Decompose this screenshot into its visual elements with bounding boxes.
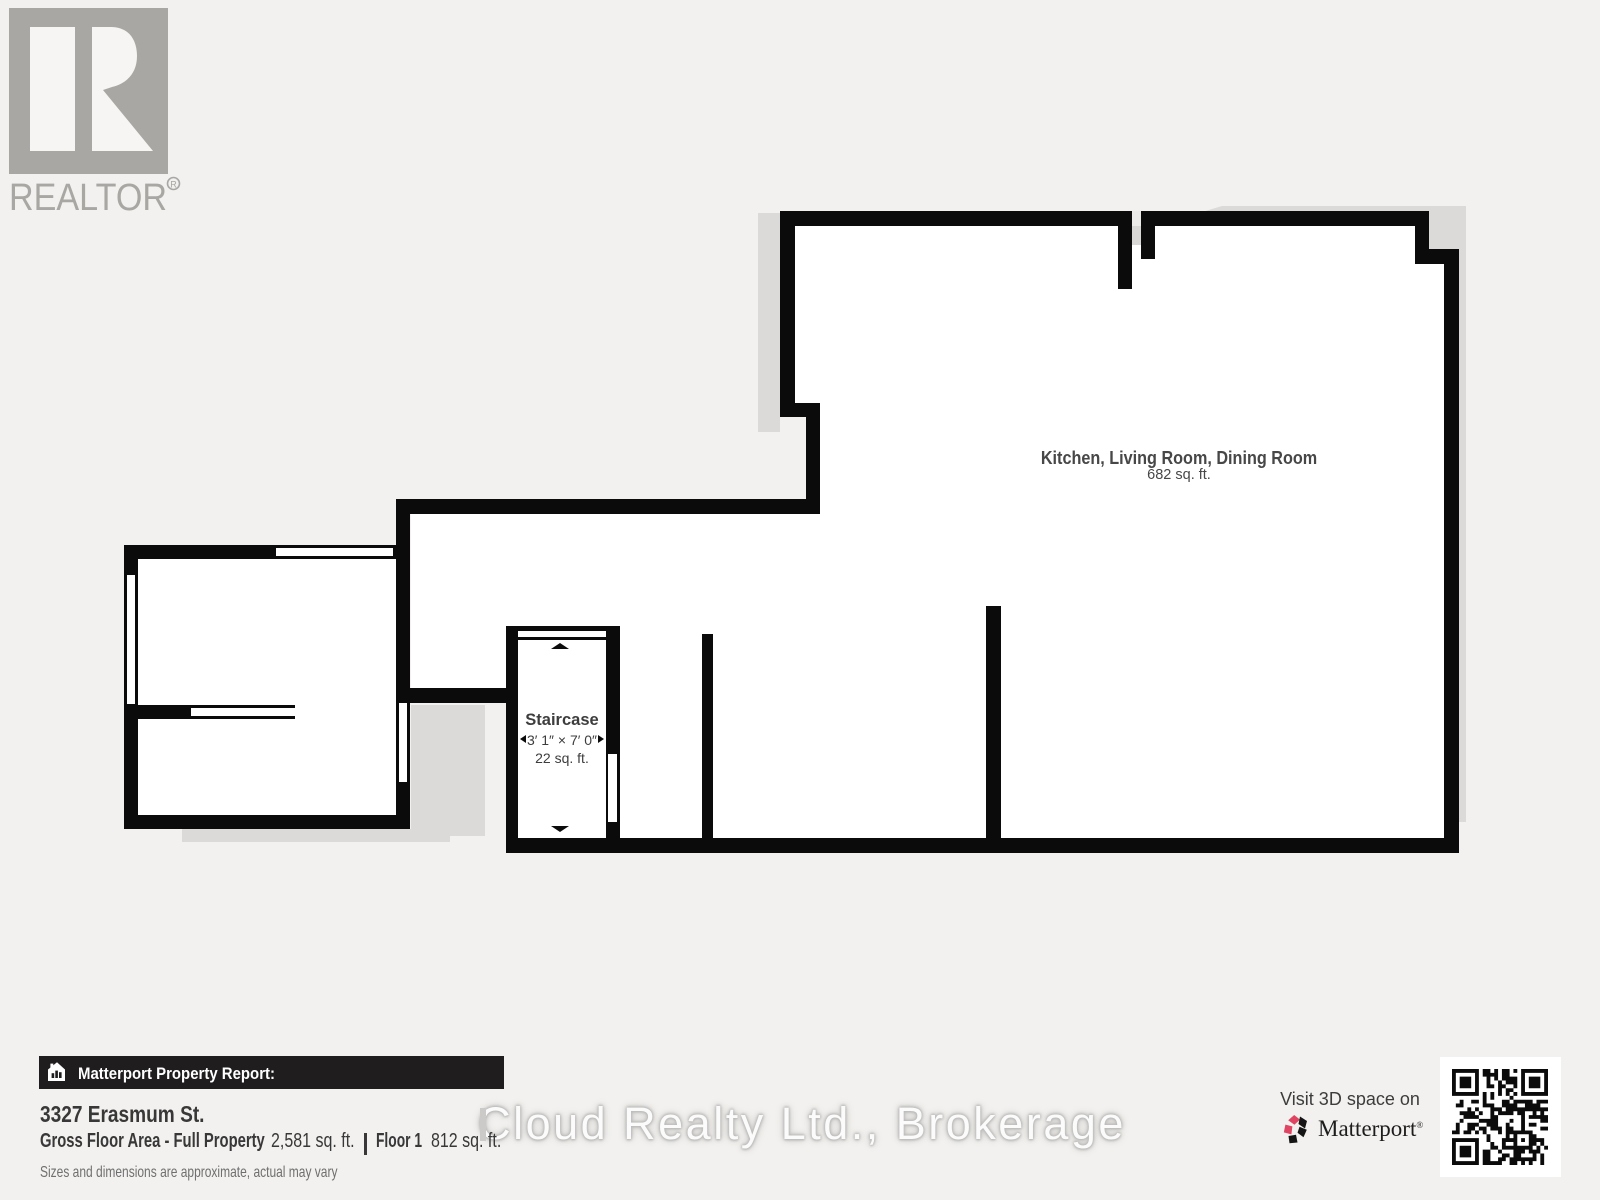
svg-text:R: R	[170, 180, 177, 190]
svg-text:REALTOR: REALTOR	[9, 177, 167, 218]
